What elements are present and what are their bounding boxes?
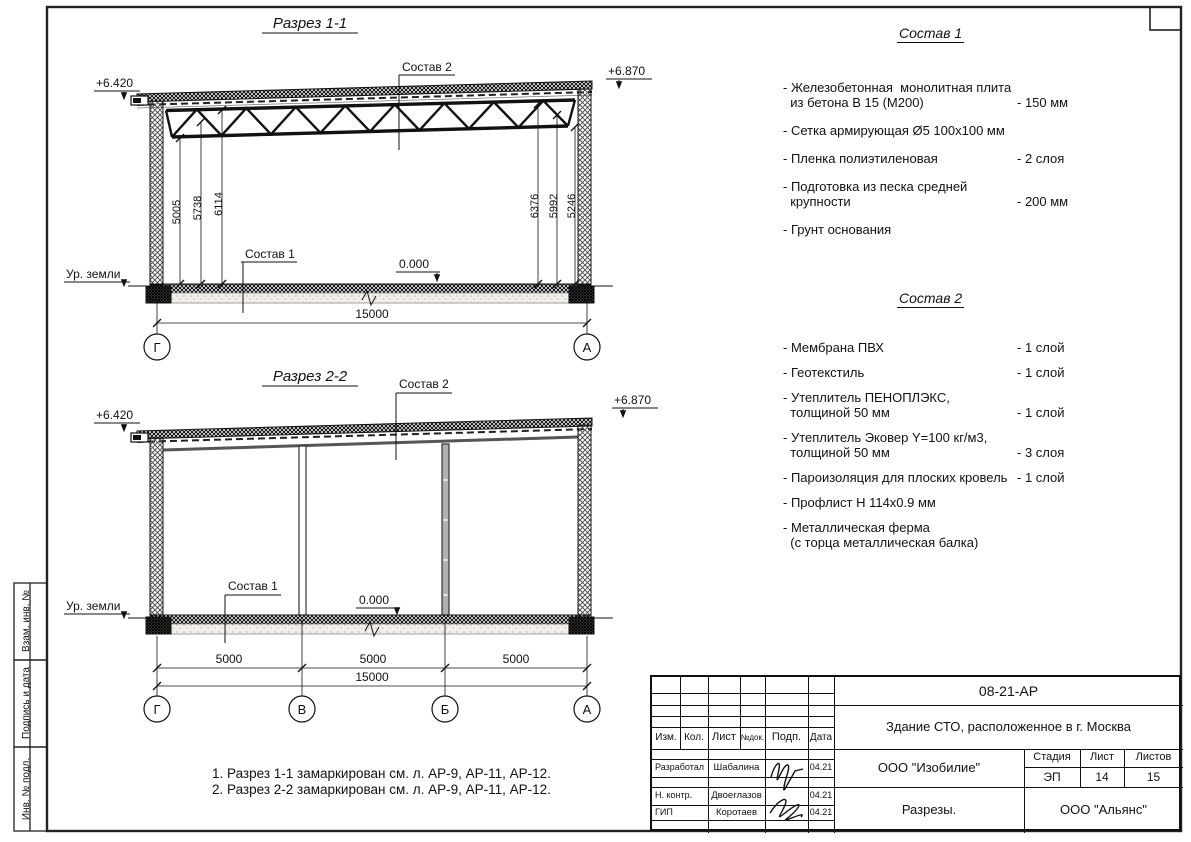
svg-text:Состав 2: Состав 2 <box>399 377 449 391</box>
axis-g: Г <box>153 340 160 355</box>
dim-5246: 5246 <box>566 194 578 218</box>
tb-project-name: Здание СТО, расположенное в г. Москва <box>834 705 1183 749</box>
svg-text:Состав 1: Состав 1 <box>245 247 295 261</box>
tb-doc-number: 08-21-АР <box>834 677 1183 705</box>
tb-role-nkontr: Н. контр. <box>652 787 708 805</box>
foundation-pad-left-2 <box>146 617 171 634</box>
list-item: - Подготовка из песка средней крупности … <box>783 179 1113 209</box>
elevation-left-2: +6.420 <box>94 408 140 431</box>
axis-bubbles: Г А <box>144 334 600 360</box>
axis2-g: Г <box>153 702 160 717</box>
tb-name-dvoeglazov: Двоеглазов <box>708 787 765 805</box>
roof-slab-2 <box>131 418 592 450</box>
list-item: - Металлическая ферма (с торца металличе… <box>783 520 1113 550</box>
corner-stamp-box <box>1150 7 1181 30</box>
axis-a: А <box>583 340 592 355</box>
tb-contractor: ООО "Альянс" <box>1024 787 1183 833</box>
dim-5000-3: 5000 <box>503 652 530 666</box>
sostav1-title: Состав 1 <box>897 25 964 43</box>
list-item: - Геотекстиль - 1 слой <box>783 365 1113 380</box>
list-item: - Пароизоляция для плоских кровель - 1 с… <box>783 470 1113 485</box>
svg-text:+6.870: +6.870 <box>614 393 651 407</box>
sostav2-title: Состав 2 <box>897 290 964 308</box>
item-name: - Сетка армирующая Ø5 100х100 мм <box>783 123 1113 138</box>
section-1-1-title: Разрез 1-1 <box>273 15 347 32</box>
tb-header-list: Лист <box>708 727 740 749</box>
side-stamp-label-inv: Инв. № подл. <box>21 758 32 820</box>
item-value: - 150 мм <box>1017 95 1068 110</box>
item-value: - 1 слой <box>1017 470 1065 485</box>
elevation-right: +6.870 <box>606 64 652 88</box>
list-item: - Пленка полиэтиленовая - 2 слоя <box>783 151 1113 166</box>
list-item: - Утеплитель Эковер Y=100 кг/м3, толщино… <box>783 430 1113 460</box>
svg-text:Состав 1: Состав 1 <box>228 579 278 593</box>
svg-text:+6.870: +6.870 <box>608 64 645 78</box>
side-stamp-label-podpis: Подпись и дата <box>21 667 32 739</box>
tb-sheets-total: 15 <box>1124 767 1183 787</box>
foundation-pad-right-2 <box>569 617 594 634</box>
tb-header-izm: Изм. <box>652 727 680 749</box>
foundation-pad-left <box>146 286 171 303</box>
tb-header-kol: Кол. <box>680 727 708 749</box>
ground-level-label: Ур. земли <box>64 267 130 286</box>
title-block: Изм. Кол. Лист №док. Подп. Дата Разработ… <box>650 675 1181 831</box>
svg-text:Ур. земли: Ур. земли <box>66 267 120 281</box>
tb-date-2: 04.21 <box>808 787 834 805</box>
elevation-right-2: +6.870 <box>612 393 658 417</box>
tb-date-3: 04.21 <box>808 805 834 820</box>
sostav2-list: - Мембрана ПВХ - 1 слой - Геотекстиль - … <box>783 340 1113 560</box>
dim-5005: 5005 <box>171 200 183 224</box>
wall-right-2 <box>578 425 591 617</box>
item-name: - Профлист Н 114х0.9 мм <box>783 495 1113 510</box>
item-value: - 2 слоя <box>1017 151 1064 166</box>
tb-role-gip: ГИП <box>652 805 708 820</box>
axis2-v: В <box>298 702 307 717</box>
tb-sheet-number: 14 <box>1080 767 1124 787</box>
section-2-2: Разрез 2-2 + <box>64 368 658 722</box>
dim-5000-2: 5000 <box>360 652 387 666</box>
svg-text:Состав 2: Состав 2 <box>402 60 452 74</box>
list-item: - Мембрана ПВХ - 1 слой <box>783 340 1113 355</box>
column-b <box>442 444 449 615</box>
tb-sheets-label: Листов <box>1124 749 1183 767</box>
dim-15000-2: 15000 <box>355 670 389 684</box>
zero-level-label: 0.000 <box>396 257 440 281</box>
item-value: - 3 слоя <box>1017 445 1064 460</box>
note-line: 2. Разрез 2-2 замаркирован см. л. АР-9, … <box>212 782 551 798</box>
item-value: - 1 слой <box>1017 340 1065 355</box>
tb-date-1: 04.21 <box>808 759 834 777</box>
svg-text:0.000: 0.000 <box>399 257 429 271</box>
item-value: - 1 слой <box>1017 405 1065 420</box>
axis-bubbles-2: Г В Б А <box>144 696 600 722</box>
axis2-a: А <box>583 702 592 717</box>
tb-stage-value: ЭП <box>1024 767 1080 787</box>
dim-6376: 6376 <box>529 194 541 218</box>
signatures <box>765 755 808 833</box>
tb-sheet-title: Разрезы. <box>834 787 1024 833</box>
tb-header-podp: Подп. <box>765 727 808 749</box>
note-line: 1. Разрез 1-1 замаркирован см. л. АР-9, … <box>212 766 551 782</box>
tb-stage-label: Стадия <box>1024 749 1080 767</box>
tb-company: ООО "Изобилие" <box>834 749 1024 787</box>
section-2-2-title: Разрез 2-2 <box>273 368 348 385</box>
item-name: - Грунт основания <box>783 222 1113 237</box>
drawing-sheet: Взам. инв. № Подпись и дата Инв. № подл.… <box>0 0 1191 842</box>
list-item: - Грунт основания <box>783 222 1113 237</box>
item-value: - 1 слой <box>1017 365 1065 380</box>
sostav1-list: - Железобетонная монолитная плита из бет… <box>783 80 1113 250</box>
tb-header-data: Дата <box>808 727 834 749</box>
tb-sheet-label: Лист <box>1080 749 1124 767</box>
dim-5738: 5738 <box>192 196 204 220</box>
tb-name-shabalina: Шабалина <box>708 759 765 777</box>
list-item: - Железобетонная монолитная плита из бет… <box>783 80 1113 110</box>
ground-level-label-2: Ур. земли <box>64 599 130 618</box>
tb-role-razrabotal: Разработал <box>652 759 708 777</box>
floor <box>128 284 613 305</box>
list-item: - Сетка армирующая Ø5 100х100 мм <box>783 123 1113 138</box>
wall-left-2 <box>150 438 163 617</box>
list-item: - Утеплитель ПЕНОПЛЭКС, толщиной 50 мм -… <box>783 390 1113 420</box>
item-value: - 200 мм <box>1017 194 1068 209</box>
axis2-b: Б <box>441 702 450 717</box>
list-item: - Профлист Н 114х0.9 мм <box>783 495 1113 510</box>
svg-text:0.000: 0.000 <box>359 593 389 607</box>
svg-text:+6.420: +6.420 <box>96 408 133 422</box>
section-1-1: Разрез 1-1 <box>64 15 652 360</box>
item-name: - Металлическая ферма (с торца металличе… <box>783 520 1113 550</box>
dim-15000: 15000 <box>355 307 389 321</box>
side-stamp-label-vzam: Взам. инв. № <box>21 590 32 652</box>
tb-name-korotaev: Коротаев <box>708 805 765 820</box>
zero-level-label-2: 0.000 <box>356 593 400 614</box>
dim-5992: 5992 <box>548 194 560 218</box>
foundation-pad-right <box>569 286 594 303</box>
dim-5000-1: 5000 <box>216 652 243 666</box>
notes: 1. Разрез 1-1 замаркирован см. л. АР-9, … <box>212 766 551 798</box>
floor-2 <box>128 615 613 636</box>
svg-text:Ур. земли: Ур. земли <box>66 599 120 613</box>
svg-text:+6.420: +6.420 <box>96 76 133 90</box>
dim-6114: 6114 <box>213 192 225 216</box>
wall-right <box>578 89 591 285</box>
wall-left <box>150 101 163 285</box>
tb-header-ndok: №док. <box>740 727 765 749</box>
column-v <box>299 446 306 615</box>
